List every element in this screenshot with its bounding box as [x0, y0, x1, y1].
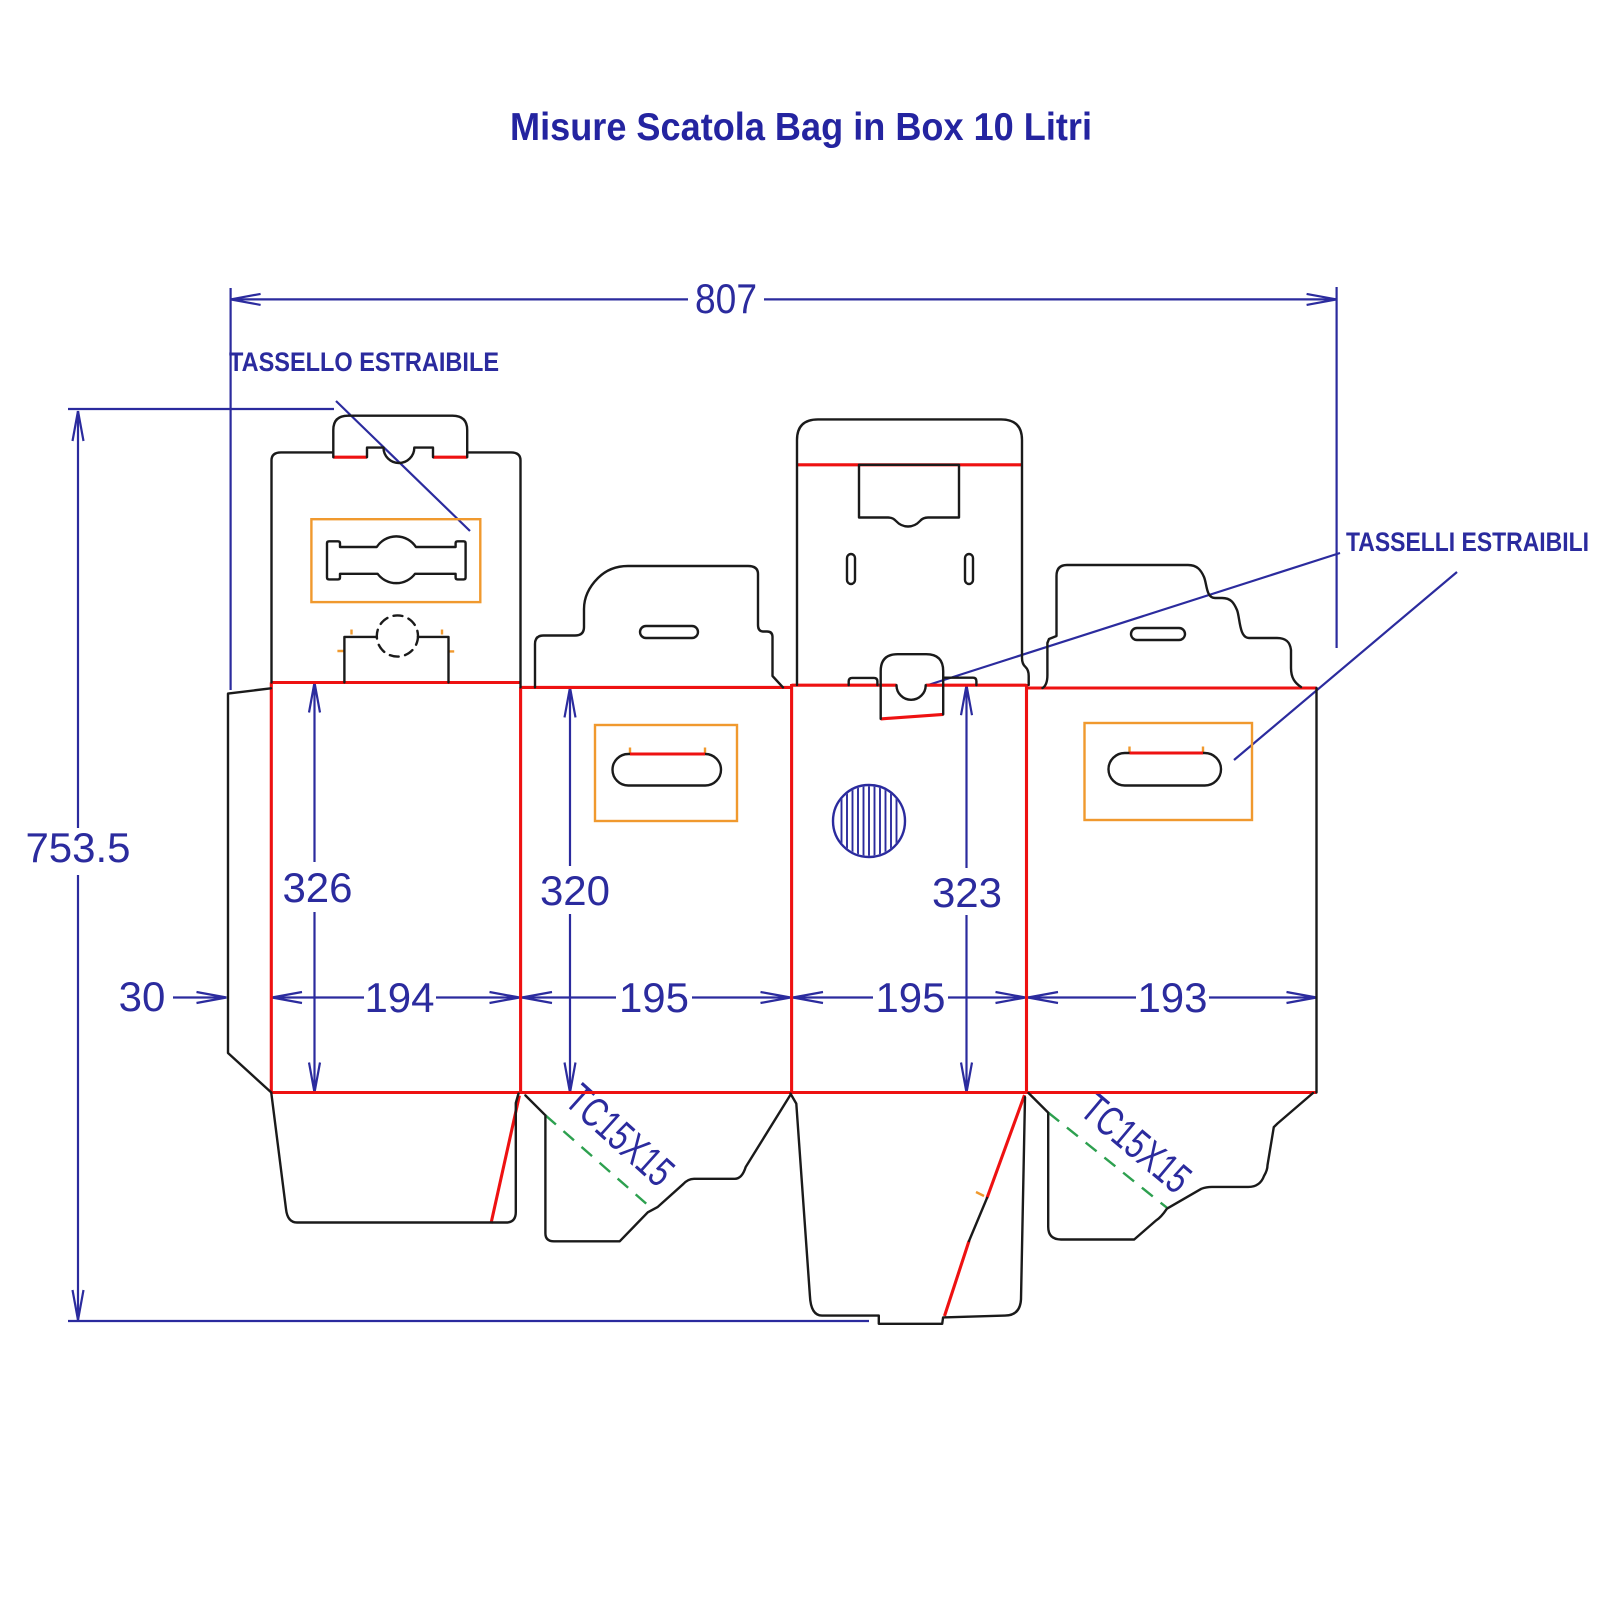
svg-text:TASSELLO ESTRAIBILE: TASSELLO ESTRAIBILE [229, 347, 499, 377]
svg-text:194: 194 [364, 974, 434, 1021]
svg-text:Misure Scatola Bag in Box 10 L: Misure Scatola Bag in Box 10 Litri [510, 106, 1092, 149]
svg-text:320: 320 [540, 867, 610, 914]
svg-text:323: 323 [932, 869, 1002, 916]
svg-text:TASSELLI ESTRAIBILI: TASSELLI ESTRAIBILI [1346, 527, 1589, 557]
svg-text:195: 195 [619, 974, 689, 1021]
svg-text:326: 326 [282, 864, 352, 911]
svg-text:807: 807 [695, 275, 757, 322]
svg-text:753.5: 753.5 [25, 824, 130, 871]
svg-text:193: 193 [1137, 974, 1207, 1021]
svg-text:195: 195 [875, 974, 945, 1021]
svg-text:30: 30 [119, 973, 166, 1020]
